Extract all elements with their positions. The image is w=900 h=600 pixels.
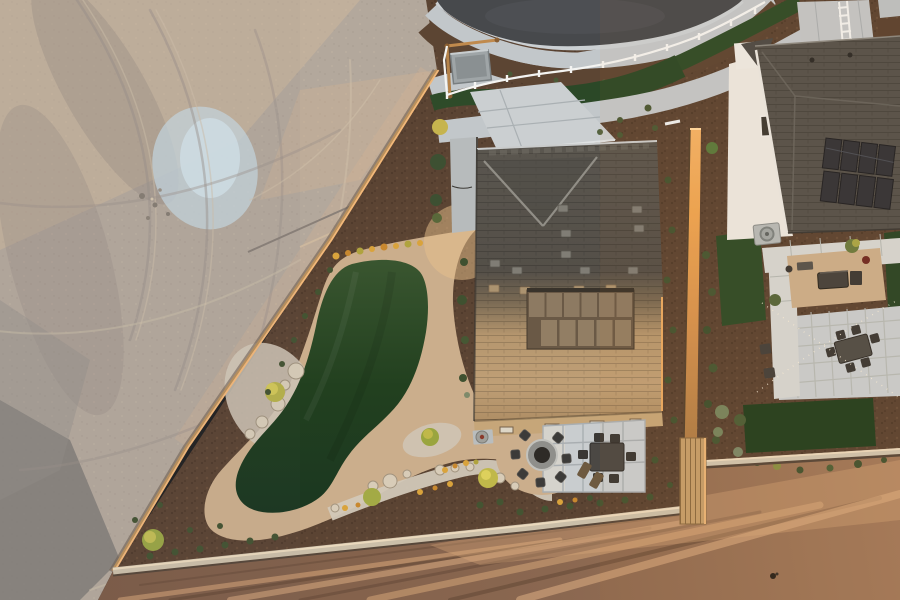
- aerial-photo-canvas: Golden-hour aerial drone view of a new-b…: [0, 0, 900, 600]
- side-table: [473, 429, 494, 444]
- side-walkway: [450, 137, 477, 233]
- utility-box: [450, 50, 491, 84]
- aerial-photo: Golden-hour aerial drone view of a new-b…: [0, 0, 900, 600]
- fire-pit: [527, 440, 557, 470]
